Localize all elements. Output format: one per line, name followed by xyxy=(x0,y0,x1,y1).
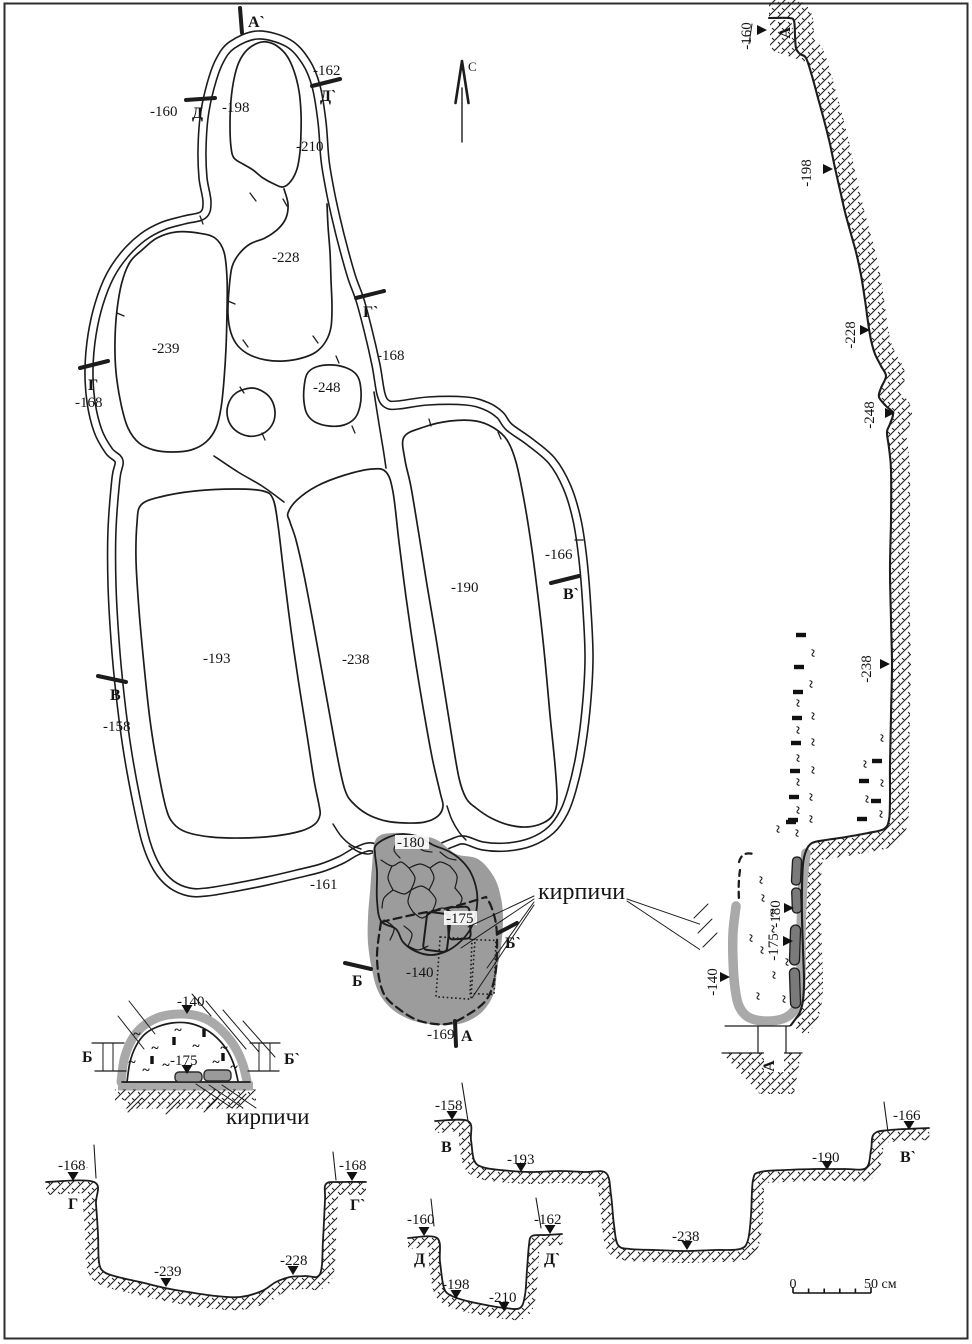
svg-text:~: ~ xyxy=(872,810,888,818)
svg-text:~: ~ xyxy=(789,726,805,734)
svg-text:~: ~ xyxy=(804,712,820,720)
svg-text:~: ~ xyxy=(804,649,820,657)
svg-text:~: ~ xyxy=(804,766,820,774)
svg-text:~: ~ xyxy=(789,806,805,814)
svg-text:-158: -158 xyxy=(103,719,131,735)
svg-text:-238: -238 xyxy=(342,652,370,668)
svg-text:А`: А` xyxy=(248,14,265,31)
svg-text:-168: -168 xyxy=(58,1158,86,1174)
svg-text:-168: -168 xyxy=(339,1158,367,1174)
svg-text:~: ~ xyxy=(802,680,818,688)
svg-text:-175: -175 xyxy=(766,933,782,961)
svg-text:-169: -169 xyxy=(427,1027,455,1043)
svg-text:-193: -193 xyxy=(203,651,231,667)
svg-text:Б: Б xyxy=(352,973,363,990)
svg-text:~: ~ xyxy=(151,1041,159,1056)
svg-text:Д: Д xyxy=(192,105,203,122)
svg-text:~: ~ xyxy=(230,1060,238,1075)
svg-text:-248: -248 xyxy=(862,401,878,429)
svg-text:В`: В` xyxy=(563,586,579,603)
svg-text:-140: -140 xyxy=(705,968,721,996)
svg-text:~: ~ xyxy=(765,971,781,979)
svg-text:~: ~ xyxy=(212,1055,220,1070)
svg-text:-180: -180 xyxy=(768,900,784,928)
svg-text:~: ~ xyxy=(133,1027,141,1042)
svg-text:В`: В` xyxy=(900,1149,916,1166)
svg-text:~: ~ xyxy=(789,778,805,786)
svg-text:~: ~ xyxy=(769,825,785,833)
svg-text:кирпичи: кирпичи xyxy=(538,879,625,905)
svg-text:-180: -180 xyxy=(397,835,425,851)
svg-text:~: ~ xyxy=(856,760,872,768)
svg-text:-238: -238 xyxy=(859,655,875,683)
svg-text:-198: -198 xyxy=(799,159,815,187)
svg-text:~: ~ xyxy=(789,699,805,707)
svg-text:~: ~ xyxy=(788,829,804,837)
svg-text:Б: Б xyxy=(82,1049,93,1066)
svg-text:~: ~ xyxy=(802,815,818,823)
svg-text:0: 0 xyxy=(790,1277,797,1292)
svg-text:50 см: 50 см xyxy=(864,1277,897,1292)
svg-text:~: ~ xyxy=(174,1023,182,1038)
svg-text:~: ~ xyxy=(858,795,874,803)
svg-text:кирпичи: кирпичи xyxy=(226,1104,309,1129)
svg-text:А`: А` xyxy=(777,22,794,39)
svg-text:Г`: Г` xyxy=(363,304,379,321)
svg-text:-140: -140 xyxy=(406,965,434,981)
svg-text:Б`: Б` xyxy=(505,935,521,952)
svg-text:-168: -168 xyxy=(377,348,405,364)
svg-text:-228: -228 xyxy=(272,250,300,266)
svg-text:-160: -160 xyxy=(407,1212,435,1228)
svg-text:С: С xyxy=(468,59,477,74)
svg-text:В: В xyxy=(110,687,121,704)
svg-text:Г`: Г` xyxy=(350,1197,366,1214)
svg-text:Д`: Д` xyxy=(544,1251,560,1268)
svg-text:-175: -175 xyxy=(446,911,474,927)
svg-text:~: ~ xyxy=(775,995,791,1003)
svg-text:~: ~ xyxy=(789,754,805,762)
svg-text:-161: -161 xyxy=(310,877,338,893)
svg-text:Б`: Б` xyxy=(284,1051,300,1068)
svg-text:-168: -168 xyxy=(75,395,103,411)
svg-text:-239: -239 xyxy=(154,1264,182,1280)
svg-text:А: А xyxy=(761,1060,778,1072)
svg-text:Д: Д xyxy=(414,1251,425,1268)
svg-text:~: ~ xyxy=(873,734,889,742)
svg-text:Г: Г xyxy=(88,377,98,394)
svg-text:-248: -248 xyxy=(313,380,341,396)
svg-text:-162: -162 xyxy=(313,63,341,79)
svg-text:-160: -160 xyxy=(150,104,178,120)
svg-text:~: ~ xyxy=(752,876,768,884)
svg-text:~: ~ xyxy=(873,779,889,787)
svg-text:-166: -166 xyxy=(545,547,573,563)
svg-text:-210: -210 xyxy=(296,139,324,155)
svg-text:~: ~ xyxy=(128,1055,136,1070)
svg-text:~: ~ xyxy=(802,793,818,801)
svg-text:В: В xyxy=(441,1139,452,1156)
svg-text:-190: -190 xyxy=(451,580,479,596)
svg-text:А: А xyxy=(461,1028,473,1045)
svg-text:~: ~ xyxy=(192,1039,200,1054)
svg-text:-160: -160 xyxy=(739,22,755,50)
svg-text:~: ~ xyxy=(142,1063,150,1078)
svg-text:-228: -228 xyxy=(843,321,859,349)
svg-text:-198: -198 xyxy=(222,100,250,116)
svg-text:~: ~ xyxy=(749,992,765,1000)
svg-text:~: ~ xyxy=(804,738,820,746)
svg-text:~: ~ xyxy=(742,934,758,942)
svg-text:Д`: Д` xyxy=(320,88,336,105)
svg-text:Г: Г xyxy=(68,1196,78,1213)
svg-text:-239: -239 xyxy=(152,341,180,357)
